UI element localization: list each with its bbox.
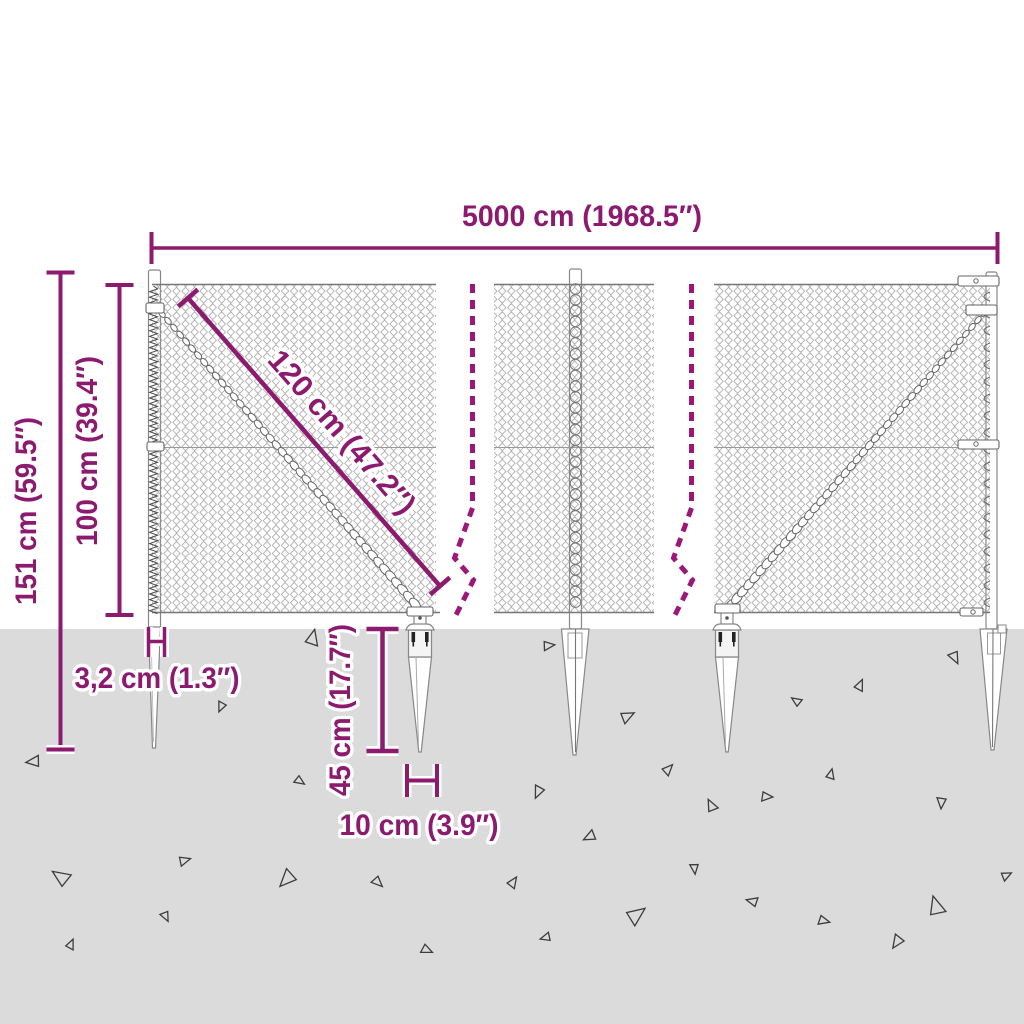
svg-text:151 cm (59.5″): 151 cm (59.5″): [10, 417, 43, 605]
svg-text:45 cm (17.7″): 45 cm (17.7″): [324, 624, 357, 796]
svg-text:3,2 cm (1.3″): 3,2 cm (1.3″): [75, 662, 240, 695]
svg-text:10 cm (3.9″): 10 cm (3.9″): [340, 809, 499, 842]
svg-text:5000 cm (1968.5″): 5000 cm (1968.5″): [462, 200, 702, 233]
svg-text:100 cm (39.4″): 100 cm (39.4″): [71, 356, 104, 546]
